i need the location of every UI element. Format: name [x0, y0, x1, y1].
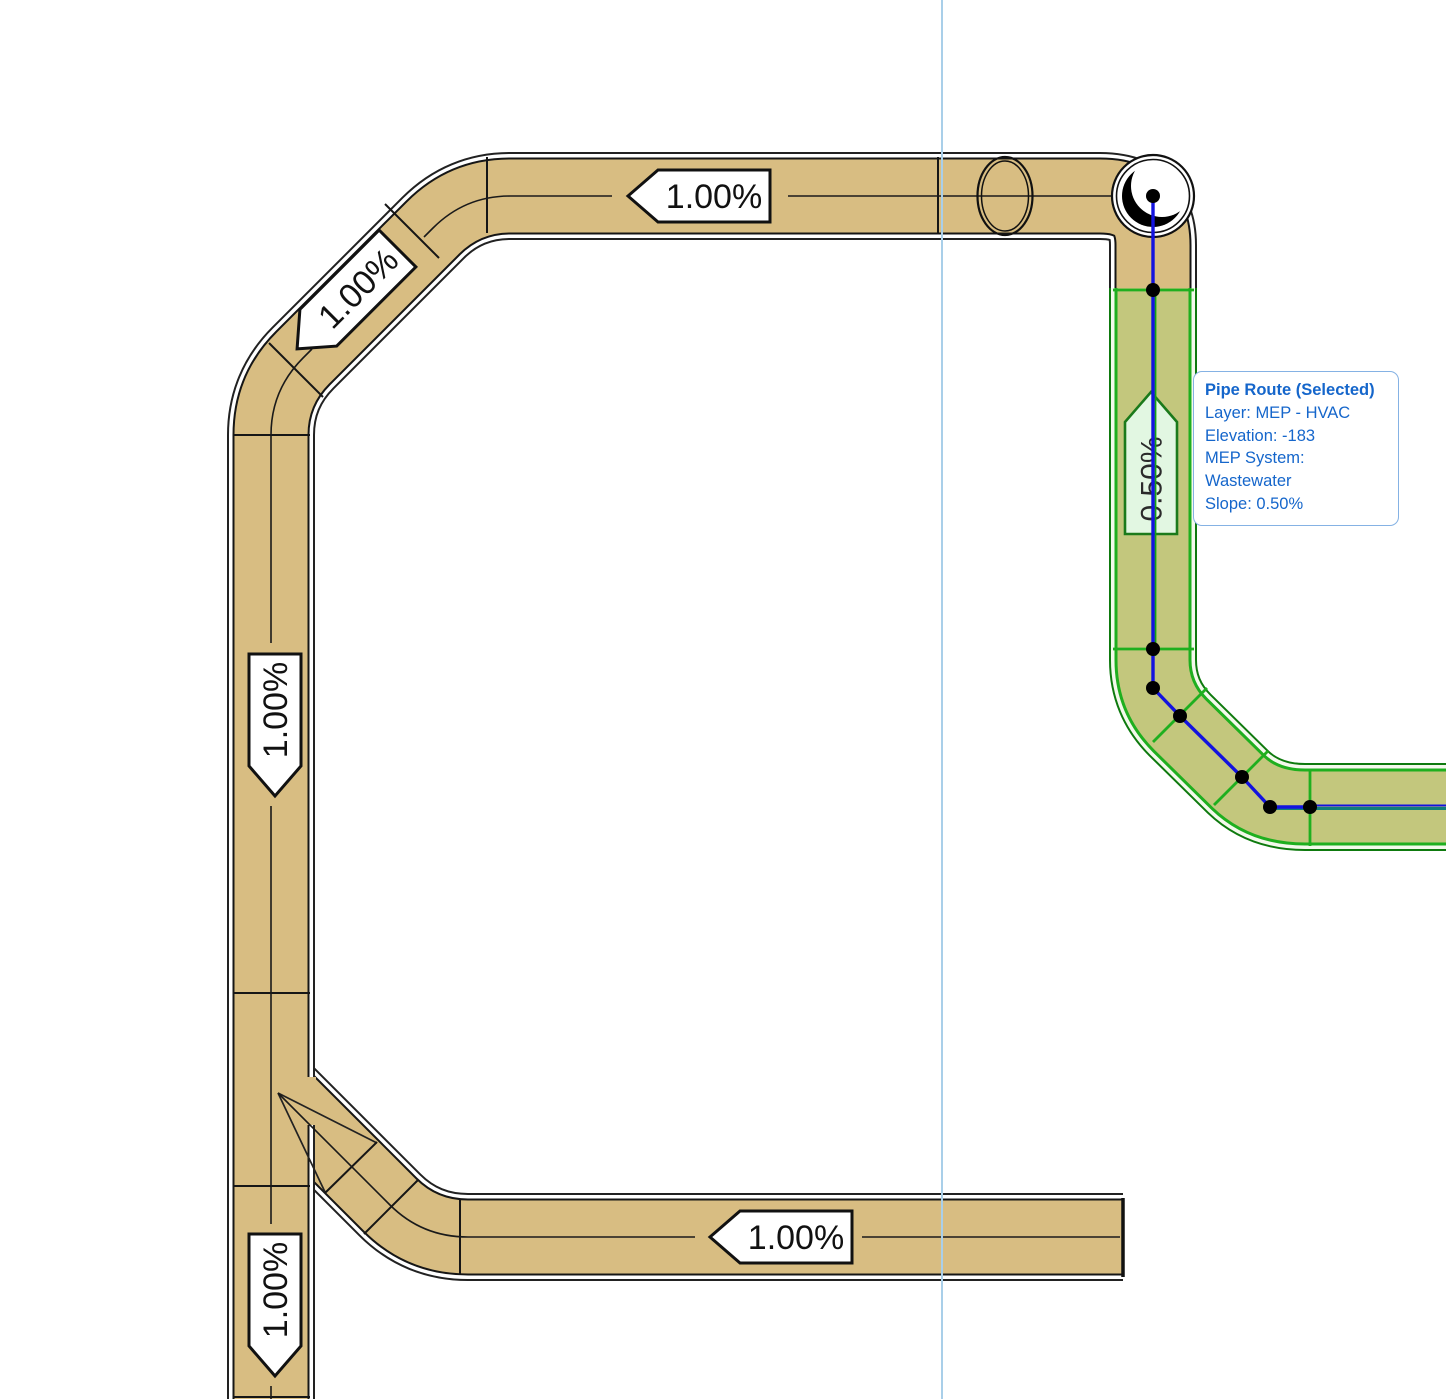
route-node[interactable]	[1235, 770, 1249, 784]
wye-patch	[305, 1077, 316, 1125]
drawing-canvas[interactable]: 1.00% 1.00% 1.00% 1.00% 0.50% 1.00% 0.50…	[0, 0, 1446, 1399]
pipe-selected-route[interactable]	[1153, 288, 1446, 807]
route-node[interactable]	[1263, 800, 1277, 814]
selection-tooltip: Pipe Route (Selected) Layer: MEP - HVAC …	[1193, 371, 1399, 526]
route-node[interactable]	[1146, 642, 1160, 656]
route-node[interactable]	[1173, 709, 1187, 723]
slope-label-selected[interactable]: 0.50%	[1125, 392, 1177, 534]
slope-label-left-vertical[interactable]: 1.00%	[249, 654, 301, 796]
slope-label-top[interactable]: 1.00%	[628, 170, 770, 222]
slope-label-text: 1.00%	[748, 1219, 844, 1257]
slope-label-text: 1.00%	[257, 662, 295, 758]
route-node[interactable]	[1146, 283, 1160, 297]
route-node[interactable]	[1146, 681, 1160, 695]
slope-label-text: 1.00%	[666, 178, 762, 216]
slope-label-bottom[interactable]: 1.00%	[710, 1211, 852, 1263]
tooltip-line-slope: Slope: 0.50%	[1205, 493, 1387, 516]
tooltip-line-layer: Layer: MEP - HVAC	[1205, 402, 1387, 425]
tooltip-line-system: MEP System: Wastewater	[1205, 447, 1387, 493]
pipe-branch-bottom[interactable]	[278, 1093, 1123, 1237]
slope-label-text: 1.00%	[257, 1242, 295, 1338]
tooltip-title: Pipe Route (Selected)	[1205, 379, 1387, 402]
route-node[interactable]	[1303, 800, 1317, 814]
route-node[interactable]	[1146, 189, 1160, 203]
slope-label-bottom-left-vertical[interactable]: 0.50% 1.00%	[249, 1234, 301, 1376]
tooltip-line-elevation: Elevation: -183	[1205, 425, 1387, 448]
